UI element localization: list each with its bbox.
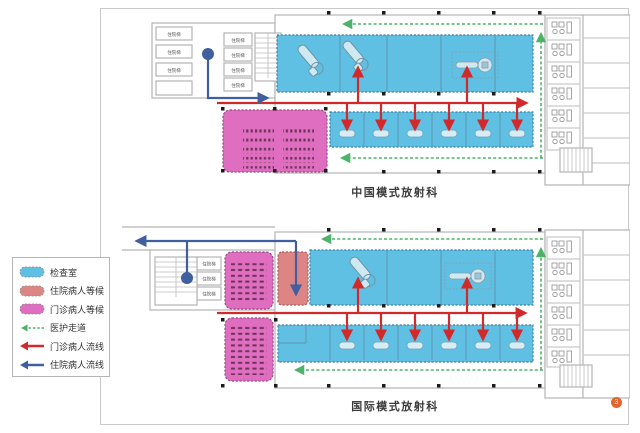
legend-label: 门诊病人流线 (50, 340, 104, 353)
china-plan-title: 中国模式放射科 (351, 185, 439, 199)
svg-text:住院梯: 住院梯 (231, 67, 245, 74)
legend-item-inpatient-wait: 住院病人等候 (19, 282, 109, 301)
svg-text:住院梯: 住院梯 (167, 49, 181, 56)
legend-label: 住院病人流线 (50, 358, 104, 371)
legend-item-outpatient-wait: 门诊病人等候 (19, 300, 109, 319)
inpatient-flow-arrow-icon (19, 359, 45, 371)
svg-text:住院梯: 住院梯 (231, 37, 245, 44)
figure-badge-number: 3 (615, 399, 619, 406)
legend-item-exam-room: 检查室 (19, 263, 109, 282)
legend-item-inpatient-flow: 住院病人流线 (19, 356, 109, 375)
svg-text:住院梯: 住院梯 (167, 67, 181, 74)
svg-text:住院梯: 住院梯 (231, 52, 245, 59)
inpatient-waiting-area (278, 252, 308, 305)
inpatient-elevator-labels: 住院梯 住院梯 住院梯 (202, 261, 216, 298)
figure-badge: 3 (611, 397, 622, 408)
legend-item-staff-corridor: 医护走道 (19, 319, 109, 338)
legend-label: 医护走道 (50, 321, 86, 334)
svg-text:住院梯: 住院梯 (202, 276, 216, 283)
international-mode-floorplan: 住院梯 住院梯 住院梯 国际模式放射科 (100, 215, 630, 427)
stairs-icon (560, 148, 592, 172)
exam-room-swatch-icon (19, 266, 45, 278)
exam-room-strip-bottom (278, 325, 533, 362)
stairs-icon (560, 365, 592, 387)
outpatient-wait-swatch-icon (19, 303, 45, 315)
staff-corridor-arrow-icon (19, 322, 45, 334)
svg-text:住院梯: 住院梯 (231, 82, 245, 89)
legend-label: 检查室 (50, 266, 77, 279)
inpatient-wait-swatch-icon (19, 285, 45, 297)
svg-text:住院梯: 住院梯 (202, 291, 216, 298)
international-plan-title: 国际模式放射科 (351, 399, 439, 413)
china-mode-floorplan: 住院梯 住院梯 住院梯 住院梯 住院梯 住院梯 住院梯 中国模式放射科 (100, 8, 630, 213)
legend: 检查室 住院病人等候 门诊病人等候 医护走道 门诊病人流线 住院病人流线 (12, 257, 110, 377)
legend-label: 门诊病人等候 (50, 303, 104, 316)
svg-text:住院梯: 住院梯 (167, 31, 181, 38)
svg-text:住院梯: 住院梯 (202, 261, 216, 268)
legend-label: 住院病人等候 (50, 284, 104, 297)
legend-item-outpatient-flow: 门诊病人流线 (19, 337, 109, 356)
exam-room-strip-top (310, 250, 533, 305)
outpatient-flow-arrow-icon (19, 340, 45, 352)
